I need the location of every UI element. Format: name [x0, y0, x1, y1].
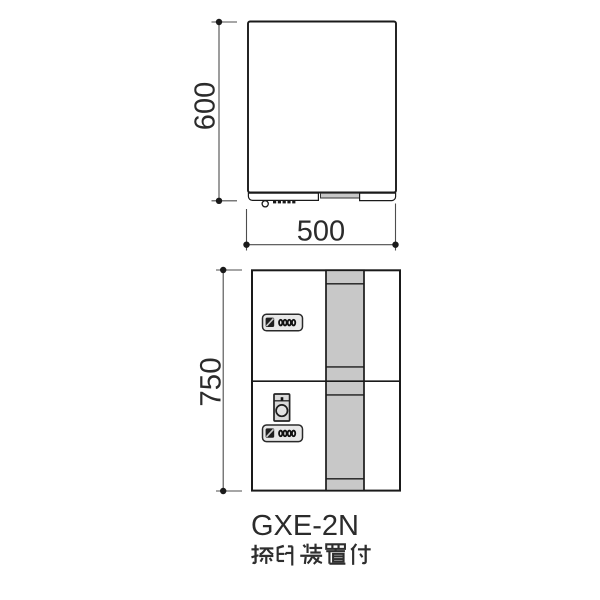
svg-text:750: 750	[195, 357, 228, 406]
svg-text:600: 600	[190, 82, 222, 130]
svg-text:500: 500	[297, 216, 345, 248]
svg-text:GXE-2N: GXE-2N	[251, 510, 359, 542]
